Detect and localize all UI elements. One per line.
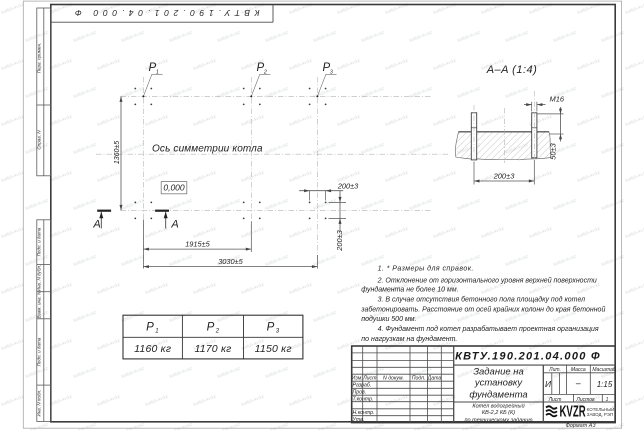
svg-text:забетонировать. Расстояние от: забетонировать. Расстояние от осей крайн… — [360, 305, 605, 313]
svg-text:1:15: 1:15 — [597, 380, 613, 389]
svg-text:3: 3 — [330, 70, 333, 76]
svg-text:50±3: 50±3 — [548, 142, 557, 159]
svg-text:Подп. и дата: Подп. и дата — [37, 337, 42, 366]
svg-text:P: P — [267, 322, 275, 334]
svg-text:КВТУ.190.201.04.000 Ф: КВТУ.190.201.04.000 Ф — [455, 351, 601, 363]
svg-text:КОТЕЛЬНЫЙ: КОТЕЛЬНЫЙ — [587, 407, 615, 412]
svg-text:N докум.: N докум. — [383, 375, 404, 381]
svg-text:200±3: 200±3 — [337, 182, 359, 191]
svg-text:200±3: 200±3 — [493, 171, 516, 180]
svg-text:2: 2 — [263, 70, 267, 76]
svg-text:1: 1 — [156, 70, 159, 76]
svg-text:Лист: Лист — [362, 375, 377, 381]
svg-text:КВ-2,2 КБ (К): КВ-2,2 КБ (К) — [482, 410, 515, 416]
svg-text:установку: установку — [474, 378, 524, 389]
svg-text:–: – — [575, 378, 581, 388]
svg-text:Перв. примен.: Перв. примен. — [37, 43, 42, 74]
svg-text:Масса: Масса — [571, 367, 586, 373]
svg-text:Н.контр.: Н.контр. — [353, 410, 375, 416]
svg-text:ЗАВОД, РЭП: ЗАВОД, РЭП — [587, 412, 613, 417]
svg-text:Разраб.: Разраб. — [353, 383, 372, 389]
svg-text:1360±5: 1360±5 — [114, 141, 121, 164]
svg-text:A: A — [92, 219, 100, 231]
svg-text:1: 1 — [606, 397, 609, 403]
svg-text:Взам. инв. N: Взам. инв. N — [37, 291, 42, 318]
svg-text:Пров.: Пров. — [353, 390, 367, 396]
svg-text:Формат А3: Формат А3 — [565, 423, 596, 429]
svg-text:0,000: 0,000 — [163, 183, 185, 193]
svg-text:P: P — [207, 322, 215, 334]
svg-text:Лит.: Лит. — [548, 367, 561, 373]
svg-text:КВТУ.190.201.04.000 Ф: КВТУ.190.201.04.000 Ф — [70, 8, 259, 18]
svg-text:Ось симметрии котла: Ось симметрии котла — [152, 143, 263, 154]
svg-text:2: 2 — [215, 328, 220, 334]
svg-text:Справ. N: Справ. N — [37, 130, 42, 150]
svg-text:2. Отклонение от горизонтальн: 2. Отклонение от горизонтального уровня … — [377, 277, 597, 285]
svg-text:Масштаб: Масштаб — [592, 367, 616, 373]
svg-text:M16: M16 — [550, 95, 565, 104]
svg-text:1160 кг: 1160 кг — [134, 343, 171, 355]
svg-text:3. В случае отсутствия бетонн: 3. В случае отсутствия бетонного пола пл… — [378, 296, 586, 304]
svg-text:фундамента не более 10 мм.: фундамента не более 10 мм. — [361, 286, 458, 294]
svg-text:Подп.: Подп. — [412, 375, 426, 381]
svg-text:по техническому заданию: по техническому заданию — [465, 418, 533, 424]
svg-text:Утв.: Утв. — [353, 417, 365, 423]
svg-text:A–A (1:4): A–A (1:4) — [486, 64, 538, 76]
svg-text:KVZR: KVZR — [560, 402, 587, 420]
svg-text:200±3: 200±3 — [335, 229, 344, 251]
svg-text:подушки 500 мм.: подушки 500 мм. — [361, 315, 416, 323]
svg-text:Дата: Дата — [427, 375, 442, 381]
svg-text:по нагрузкам на фундамент.: по нагрузкам на фундамент. — [361, 335, 457, 343]
svg-text:Подп. и дата: Подп. и дата — [37, 227, 42, 256]
svg-text:3030±5: 3030±5 — [218, 257, 243, 266]
svg-text:A: A — [170, 219, 178, 231]
svg-text:Котел водогрейный: Котел водогрейный — [472, 402, 524, 409]
svg-text:фундамента: фундамента — [469, 390, 527, 401]
svg-text:1150 кг: 1150 кг — [255, 343, 292, 355]
svg-text:4. Фундамент под котел разраб: 4. Фундамент под котел разрабатывает про… — [378, 325, 599, 333]
svg-text:1: 1 — [155, 328, 158, 334]
svg-text:И: И — [545, 379, 552, 389]
svg-text:Инв. N дубл.: Инв. N дубл. — [37, 265, 42, 292]
svg-text:Изм.: Изм. — [352, 375, 363, 381]
svg-text:P: P — [146, 322, 154, 334]
svg-text:Т.контр.: Т.контр. — [353, 396, 374, 402]
svg-text:1170 кг: 1170 кг — [194, 343, 231, 355]
svg-text:1. * Размеры для справок.: 1. * Размеры для справок. — [378, 264, 474, 272]
svg-text:1915±5: 1915±5 — [185, 239, 210, 248]
svg-text:Инв. N подл.: Инв. N подл. — [37, 390, 42, 417]
svg-text:Задание на: Задание на — [473, 367, 524, 378]
